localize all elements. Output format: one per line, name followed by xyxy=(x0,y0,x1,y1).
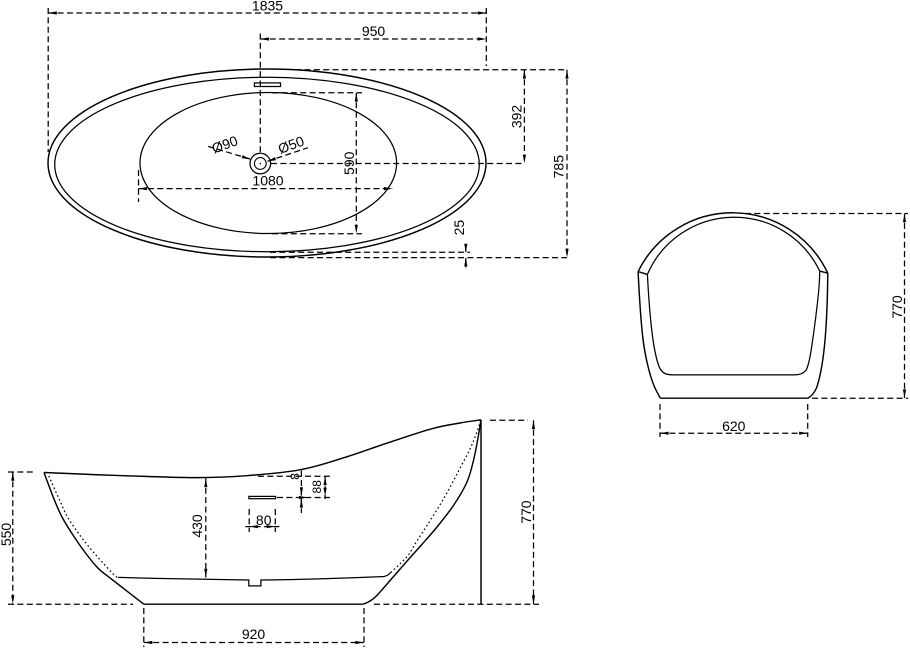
svg-text:770: 770 xyxy=(889,295,905,319)
svg-text:770: 770 xyxy=(518,500,534,524)
svg-text:80: 80 xyxy=(256,512,272,528)
svg-text:25: 25 xyxy=(451,220,467,236)
svg-text:1835: 1835 xyxy=(252,0,283,13)
svg-text:785: 785 xyxy=(551,155,567,179)
svg-text:430: 430 xyxy=(189,514,205,538)
svg-text:550: 550 xyxy=(0,523,14,547)
svg-text:8: 8 xyxy=(288,473,302,480)
svg-text:590: 590 xyxy=(341,151,357,175)
svg-text:950: 950 xyxy=(362,23,386,39)
svg-text:920: 920 xyxy=(242,626,266,642)
svg-text:392: 392 xyxy=(509,105,525,129)
svg-text:620: 620 xyxy=(722,418,746,434)
svg-text:1080: 1080 xyxy=(252,173,283,189)
svg-text:88: 88 xyxy=(310,480,324,494)
